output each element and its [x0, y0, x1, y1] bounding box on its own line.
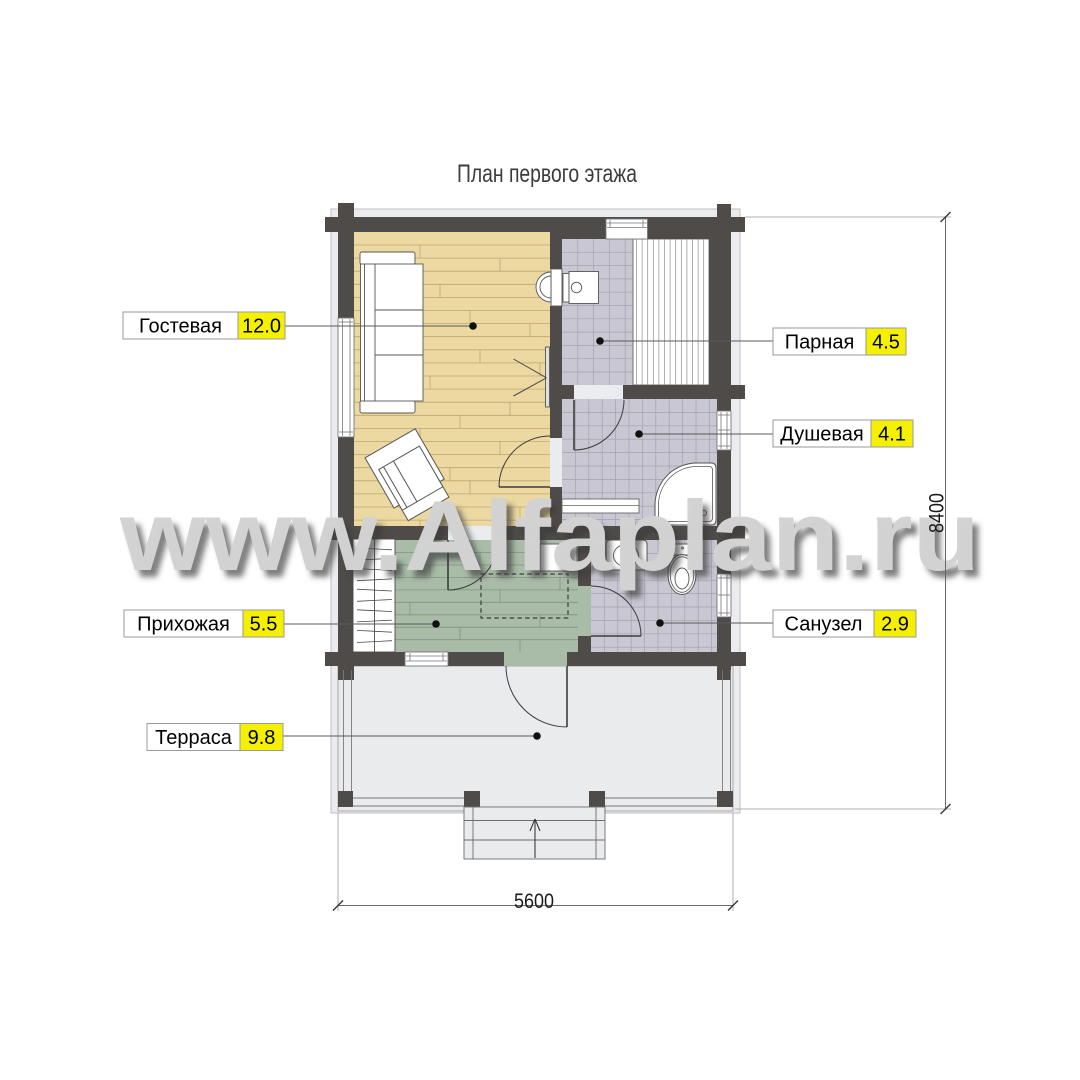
- svg-text:Гостевая: Гостевая: [139, 316, 222, 338]
- svg-text:8400: 8400: [925, 493, 949, 533]
- svg-text:9.8: 9.8: [248, 727, 276, 749]
- svg-text:Прихожая: Прихожая: [137, 614, 230, 636]
- svg-text:4.5: 4.5: [872, 332, 900, 354]
- svg-text:Терраса: Терраса: [155, 727, 233, 749]
- svg-text:5.5: 5.5: [250, 614, 278, 636]
- svg-text:Душевая: Душевая: [780, 424, 864, 446]
- svg-text:12.0: 12.0: [242, 316, 281, 338]
- svg-text:www.Alfaplan.ru: www.Alfaplan.ru: [119, 480, 980, 591]
- svg-text:Парная: Парная: [785, 332, 855, 354]
- svg-text:2.9: 2.9: [881, 614, 909, 636]
- svg-text:Санузел: Санузел: [785, 614, 863, 636]
- svg-text:4.1: 4.1: [878, 424, 906, 446]
- svg-text:5600: 5600: [514, 889, 554, 913]
- svg-text:План первого этажа: План первого этажа: [457, 160, 637, 188]
